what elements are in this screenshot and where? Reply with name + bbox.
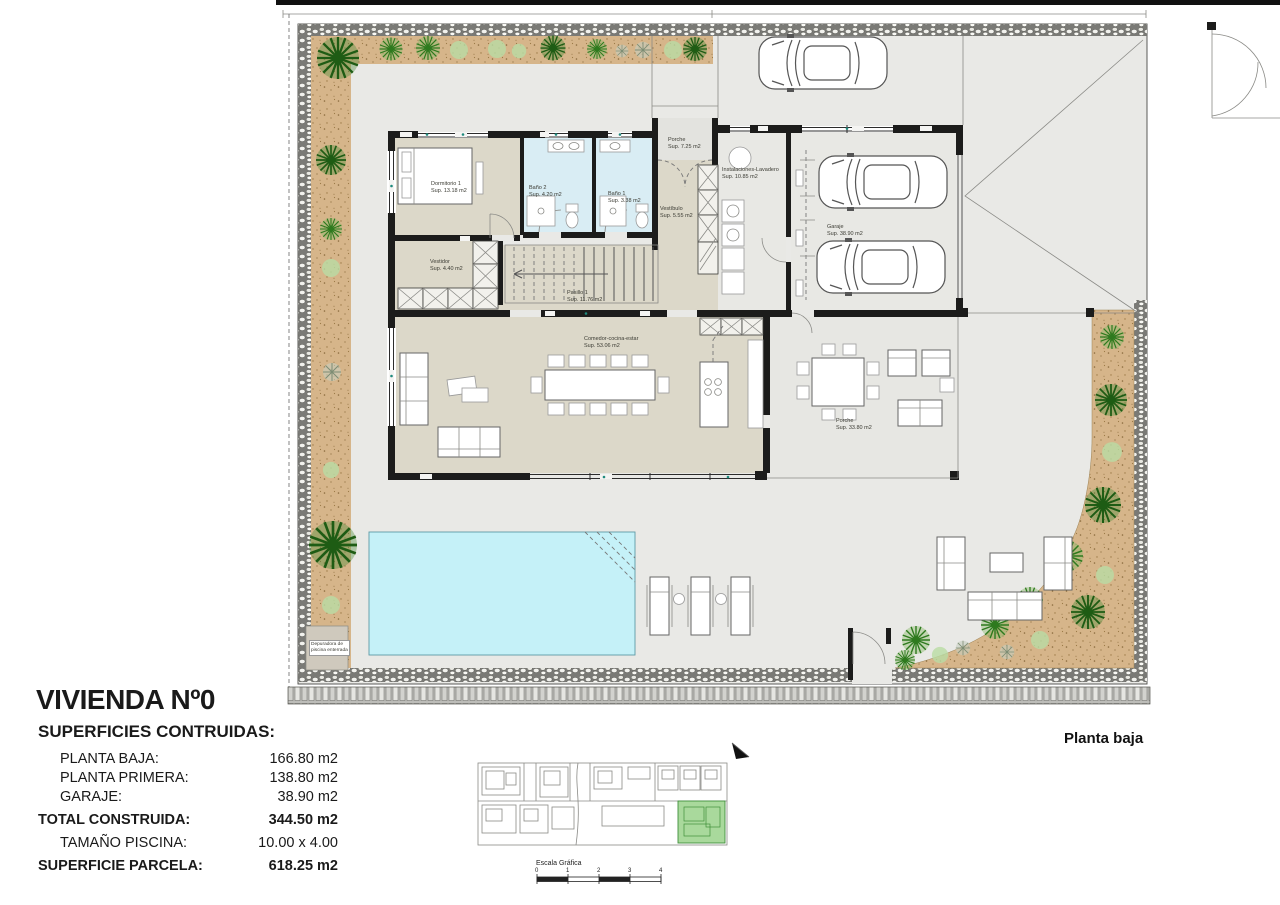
scale-tick-4: 4 — [659, 868, 662, 874]
north-arrow-icon — [732, 743, 749, 759]
room-area: Sup. 38.90 m2 — [827, 231, 863, 238]
room-label-dormitorio-1: Dormitorio 1 Sup. 13.18 m2 — [431, 181, 467, 195]
room-label-porche-entrada: Porche Sup. 7.25 m2 — [668, 137, 701, 151]
surface-row-planta-primera: PLANTA PRIMERA: 138.80 m2 — [36, 769, 338, 788]
dwelling-title: VIVIENDA Nº0 — [36, 684, 338, 716]
scale-label: Escala Gráfica — [536, 860, 582, 867]
sun-loungers — [647, 577, 753, 635]
room-area: Sup. 13.18 m2 — [431, 188, 467, 195]
surface-value: 166.80 m2 — [226, 750, 338, 769]
scale-tick-2: 2 — [597, 868, 600, 874]
scale-bar — [537, 874, 661, 884]
room-name: Instalaciones-Lavadero — [722, 167, 779, 174]
room-label-pasillo-1: Pasillo 1 Sup. 11.76 m2 — [567, 290, 602, 304]
surface-value: 138.80 m2 — [226, 769, 338, 788]
pool — [369, 532, 635, 655]
window-north-bedroom — [418, 132, 488, 138]
room-name: Pasillo 1 — [567, 290, 602, 297]
surface-label: PLANTA PRIMERA: — [36, 769, 226, 788]
room-area: Sup. 7.25 m2 — [668, 144, 701, 151]
plan-title: Planta baja — [1064, 730, 1143, 747]
room-label-instalaciones: Instalaciones-Lavadero Sup. 10.85 m2 — [722, 167, 779, 181]
scale-tick-0: 0 — [535, 868, 538, 874]
room-name: Porche — [836, 418, 872, 425]
room-label-bano-2: Baño 2 Sup. 4.20 m2 — [529, 185, 562, 199]
sidewalk-pavers — [288, 687, 1150, 704]
room-area: Sup. 53.06 m2 — [584, 343, 638, 350]
surface-value: 618.25 m2 — [226, 857, 338, 876]
surface-label: TOTAL CONSTRUIDA: — [36, 811, 226, 830]
surface-label: PLANTA BAJA: — [36, 750, 226, 769]
room-area: Sup. 3.38 m2 — [608, 198, 641, 205]
room-name: Baño 2 — [529, 185, 562, 192]
car-garage-1 — [819, 153, 947, 211]
surface-value: 38.90 m2 — [226, 788, 338, 807]
car-street — [759, 34, 887, 92]
room-area: Sup. 10.85 m2 — [722, 174, 779, 181]
room-name: Porche — [668, 137, 701, 144]
title-block: VIVIENDA Nº0 SUPERFICIES CONTRUIDAS: PLA… — [36, 684, 338, 876]
pool-filter-note: Depuradora de piscina enterrada — [309, 640, 350, 656]
room-name: Vestidor — [430, 259, 463, 266]
room-label-bano-1: Baño 1 Sup. 3.38 m2 — [608, 191, 641, 205]
surface-row-piscina: TAMAÑO PISCINA: 10.00 x 4.00 — [36, 834, 338, 853]
room-area: Sup. 4.40 m2 — [430, 266, 463, 273]
surface-row-total: TOTAL CONSTRUIDA: 344.50 m2 — [36, 811, 338, 830]
room-area: Sup. 4.20 m2 — [529, 192, 562, 199]
surface-row-planta-baja: PLANTA BAJA: 166.80 m2 — [36, 750, 338, 769]
room-label-vestibulo: Vestíbulo Sup. 5.55 m2 — [660, 206, 693, 220]
surfaces-heading: SUPERFICIES CONTRUIDAS: — [38, 722, 338, 742]
room-area: Sup. 5.55 m2 — [660, 213, 693, 220]
surface-label: SUPERFICIE PARCELA: — [36, 857, 226, 876]
room-area: Sup. 11.76 m2 — [567, 297, 602, 304]
surface-row-garaje: GARAJE: 38.90 m2 — [36, 788, 338, 807]
room-label-vestidor: Vestidor Sup. 4.40 m2 — [430, 259, 463, 273]
key-plan — [478, 763, 727, 845]
surface-value: 344.50 m2 — [226, 811, 338, 830]
room-area: Sup. 33.80 m2 — [836, 425, 872, 432]
scale-tick-1: 1 — [566, 868, 569, 874]
room-label-garaje: Garaje Sup. 38.90 m2 — [827, 224, 863, 238]
scale-tick-3: 3 — [628, 868, 631, 874]
surface-label: GARAJE: — [36, 788, 226, 807]
surface-label: TAMAÑO PISCINA: — [36, 834, 226, 853]
room-name: Dormitorio 1 — [431, 181, 467, 188]
room-label-porche-terraza: Porche Sup. 33.80 m2 — [836, 418, 872, 432]
drawing-sheet: Dormitorio 1 Sup. 13.18 m2 Baño 2 Sup. 4… — [0, 0, 1280, 905]
room-label-comedor-cocina-estar: Comedor-cocina-estar Sup. 53.06 m2 — [584, 336, 638, 350]
room-name: Vestíbulo — [660, 206, 693, 213]
surface-value: 10.00 x 4.00 — [226, 834, 338, 853]
car-garage-2 — [817, 238, 945, 296]
room-name: Comedor-cocina-estar — [584, 336, 638, 343]
window-north-instalaciones — [730, 126, 750, 132]
room-name: Garaje — [827, 224, 863, 231]
bed — [398, 148, 483, 204]
surface-row-parcela: SUPERFICIE PARCELA: 618.25 m2 — [36, 857, 338, 876]
room-name: Baño 1 — [608, 191, 641, 198]
